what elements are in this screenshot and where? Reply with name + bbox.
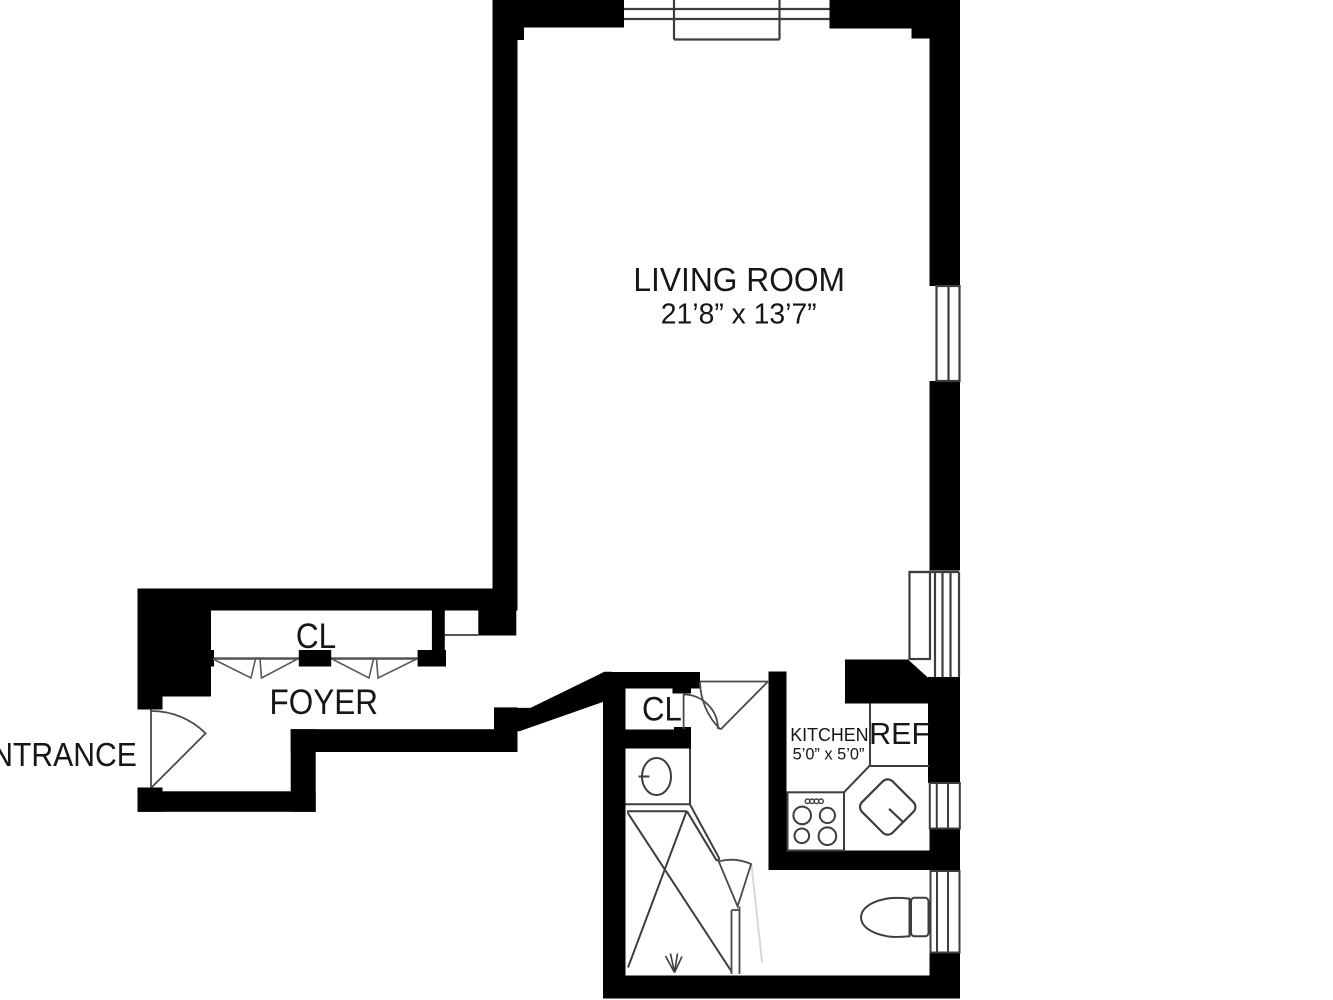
svg-text:ENTRANCE: ENTRANCE — [0, 736, 137, 774]
svg-text:LIVING ROOM: LIVING ROOM — [633, 260, 845, 298]
svg-text:CL: CL — [642, 689, 682, 728]
svg-text:REF: REF — [869, 717, 930, 751]
svg-text:5’0” x 5’0”: 5’0” x 5’0” — [793, 745, 865, 764]
svg-text:CL: CL — [296, 618, 336, 657]
svg-text:FOYER: FOYER — [269, 684, 377, 723]
svg-text:21’8” x 13’7”: 21’8” x 13’7” — [661, 298, 817, 330]
svg-text:KITCHEN: KITCHEN — [790, 724, 868, 745]
